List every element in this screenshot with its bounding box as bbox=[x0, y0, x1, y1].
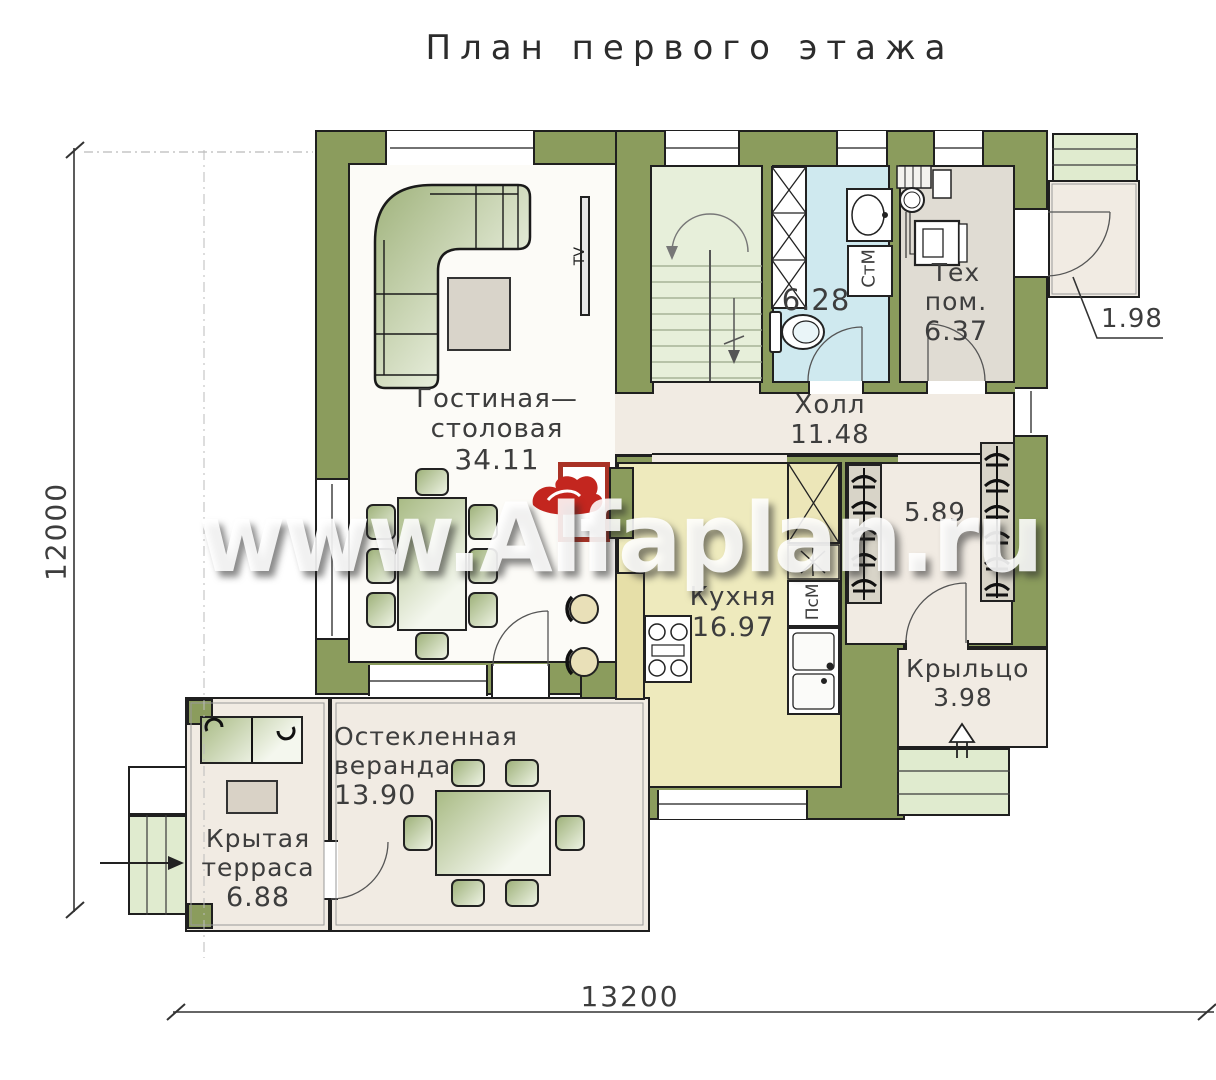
veranda-chair bbox=[505, 879, 539, 907]
door-opening-veranda bbox=[491, 664, 550, 697]
window bbox=[664, 131, 740, 165]
opening-stairs-hall bbox=[652, 383, 761, 394]
floor-plan-canvas: План первого этажа bbox=[0, 0, 1216, 1080]
window bbox=[368, 665, 488, 696]
label-washing-machine: СтМ bbox=[860, 243, 881, 293]
label-porch: Крыльцо 3.98 bbox=[906, 654, 1020, 712]
dimension-left: 12000 bbox=[40, 476, 73, 588]
dining-chair bbox=[415, 632, 449, 660]
opening-hall-kitchen bbox=[652, 455, 787, 462]
room-stairs bbox=[650, 165, 763, 383]
room-back-porch bbox=[1048, 180, 1140, 298]
label-living: Гостиная— столовая 34.11 bbox=[402, 384, 592, 477]
label-tv: TV bbox=[572, 234, 588, 278]
window bbox=[836, 131, 888, 165]
dimension-bottom: 13200 bbox=[560, 980, 700, 1013]
dining-chair bbox=[468, 592, 498, 628]
coffee-table bbox=[447, 277, 511, 351]
window bbox=[1015, 387, 1048, 437]
door-opening-porch bbox=[905, 640, 969, 650]
veranda-chair bbox=[555, 815, 585, 851]
dining-chair bbox=[366, 592, 396, 628]
window bbox=[933, 131, 984, 165]
opening-hall-entry bbox=[898, 455, 982, 462]
back-porch-steps bbox=[1052, 133, 1138, 182]
label-back-porch-area: 1.98 bbox=[1094, 304, 1170, 334]
label-tech: Тех пом. 6.37 bbox=[898, 258, 1014, 347]
terrace-bench bbox=[200, 716, 303, 764]
door-opening-terrace bbox=[324, 840, 338, 900]
veranda-chair bbox=[451, 879, 485, 907]
door-opening-back-porch bbox=[1015, 208, 1048, 278]
label-hall: Холл 11.48 bbox=[778, 390, 882, 450]
terrace-table bbox=[226, 780, 278, 814]
terrace-landing bbox=[128, 766, 187, 815]
window bbox=[385, 131, 535, 165]
page-title: План первого этажа bbox=[320, 28, 1060, 68]
terrace-steps bbox=[128, 815, 187, 915]
label-bathroom-area: 6.28 bbox=[780, 284, 852, 318]
label-veranda: Остекленная веранда 13.90 bbox=[334, 722, 524, 811]
opening-living-hall bbox=[615, 392, 652, 456]
porch-steps bbox=[897, 748, 1010, 816]
watermark: www.Alfaplan.ru bbox=[198, 484, 1041, 594]
veranda-chair bbox=[403, 815, 433, 851]
window bbox=[657, 790, 808, 819]
label-terrace: Крытая терраса 6.88 bbox=[190, 824, 326, 913]
door-opening-tech bbox=[926, 381, 987, 394]
